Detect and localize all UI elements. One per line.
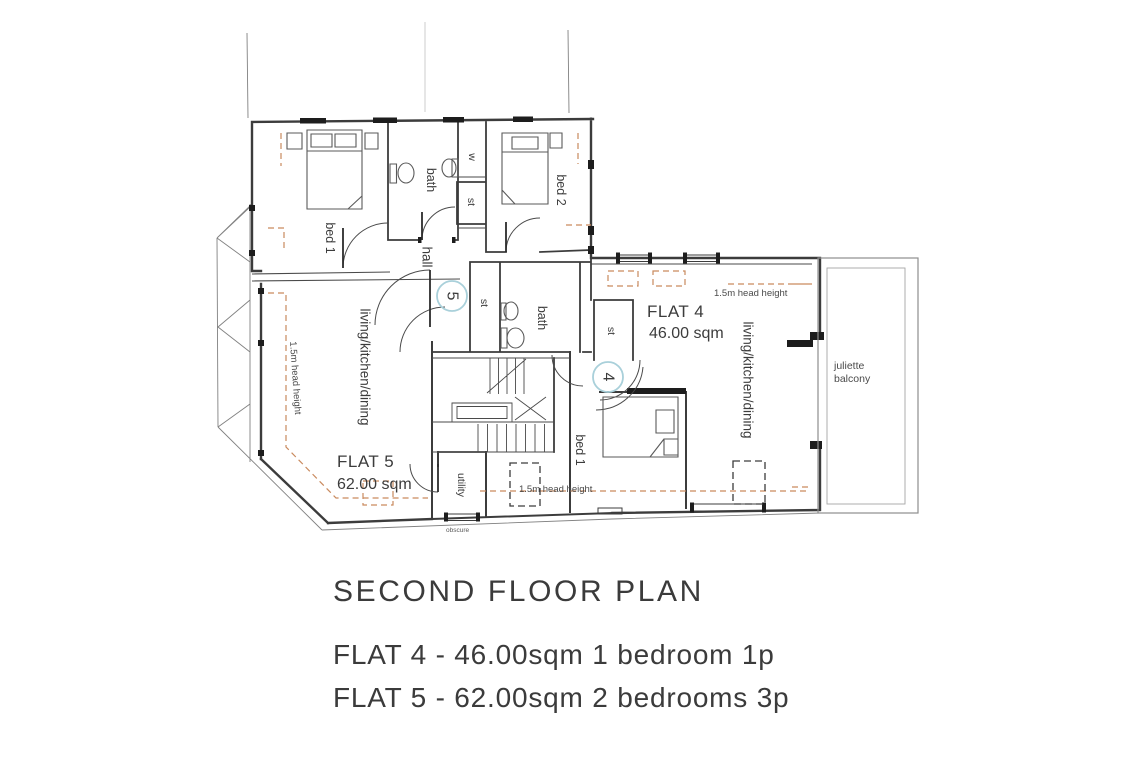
flat-markers: 5 4 <box>437 281 623 392</box>
room-label-bed1-flat4: bed 1 <box>573 434 587 465</box>
balcony-outer-rail <box>818 258 918 513</box>
toilet-tanks-sink-units <box>390 159 507 348</box>
head-height-note-top: 1.5m head height <box>714 288 788 299</box>
door-swing-arcs <box>343 207 643 492</box>
juliette-balcony: juliette balcony <box>818 258 918 513</box>
legend: SECOND FLOOR PLAN FLAT 4 - 46.00sqm 1 be… <box>333 575 789 713</box>
head-height-note-left: 1.5m head height <box>287 341 303 415</box>
room-label-utility-flat5: utility <box>455 473 467 498</box>
flat4-area-label: 46.00 sqm <box>649 325 724 342</box>
room-label-bed2-flat5: bed 2 <box>554 174 568 205</box>
floor-plan-drawing: juliette balcony 5 4 bed 1 bath w st bed… <box>0 0 1140 759</box>
room-label-store-flat5: st <box>478 299 490 307</box>
room-label-hall-flat5: hall <box>420 246 435 267</box>
legend-flat5-line: FLAT 5 - 62.00sqm 2 bedrooms 3p <box>333 682 789 713</box>
flat5-marker-number: 5 <box>444 292 461 301</box>
head-height-note-bottom: 1.5m head height <box>519 484 593 495</box>
flat5-title: FLAT 5 <box>337 452 394 471</box>
floor-plan-page: juliette balcony 5 4 bed 1 bath w st bed… <box>0 0 1140 759</box>
room-label-store-flat4: st <box>605 327 617 335</box>
balcony-inner-rail <box>827 268 905 504</box>
toilet-bowl-icon-mid <box>507 328 524 348</box>
room-label-store-top-flat5: st <box>465 198 477 206</box>
stair-treads <box>432 358 554 452</box>
room-label-living-flat5: living/kitchen/dining <box>358 308 373 425</box>
balcony-label-line1: juliette <box>833 360 865 372</box>
obscure-glazing-note: obscure <box>446 527 470 534</box>
flat5-area-label: 62.00 sqm <box>337 476 412 493</box>
room-label-wardrobe-flat5: w <box>466 152 478 161</box>
room-label-bath-flat5: bath <box>424 168 438 192</box>
doors <box>343 207 643 492</box>
bed-double-flat5 <box>287 130 378 209</box>
bed-single-flat5-bed2 <box>502 133 562 204</box>
fixtures <box>287 130 678 457</box>
toilet-bowl-icon-upper <box>398 163 414 183</box>
roof-eaves-lines <box>217 22 820 530</box>
room-label-living-flat4: living/kitchen/dining <box>741 321 756 438</box>
flat4-title: FLAT 4 <box>647 302 704 321</box>
room-label-bath-flat4: bath <box>535 306 549 330</box>
legend-flat4-line: FLAT 4 - 46.00sqm 1 bedroom 1p <box>333 639 775 670</box>
balcony-label-line2: balcony <box>834 373 871 385</box>
legend-title: SECOND FLOOR PLAN <box>333 575 704 608</box>
staircase <box>432 358 554 452</box>
room-label-bed1-flat5: bed 1 <box>323 222 337 253</box>
sink-icon-upper <box>442 159 456 177</box>
flat4-marker-number: 4 <box>600 373 617 382</box>
